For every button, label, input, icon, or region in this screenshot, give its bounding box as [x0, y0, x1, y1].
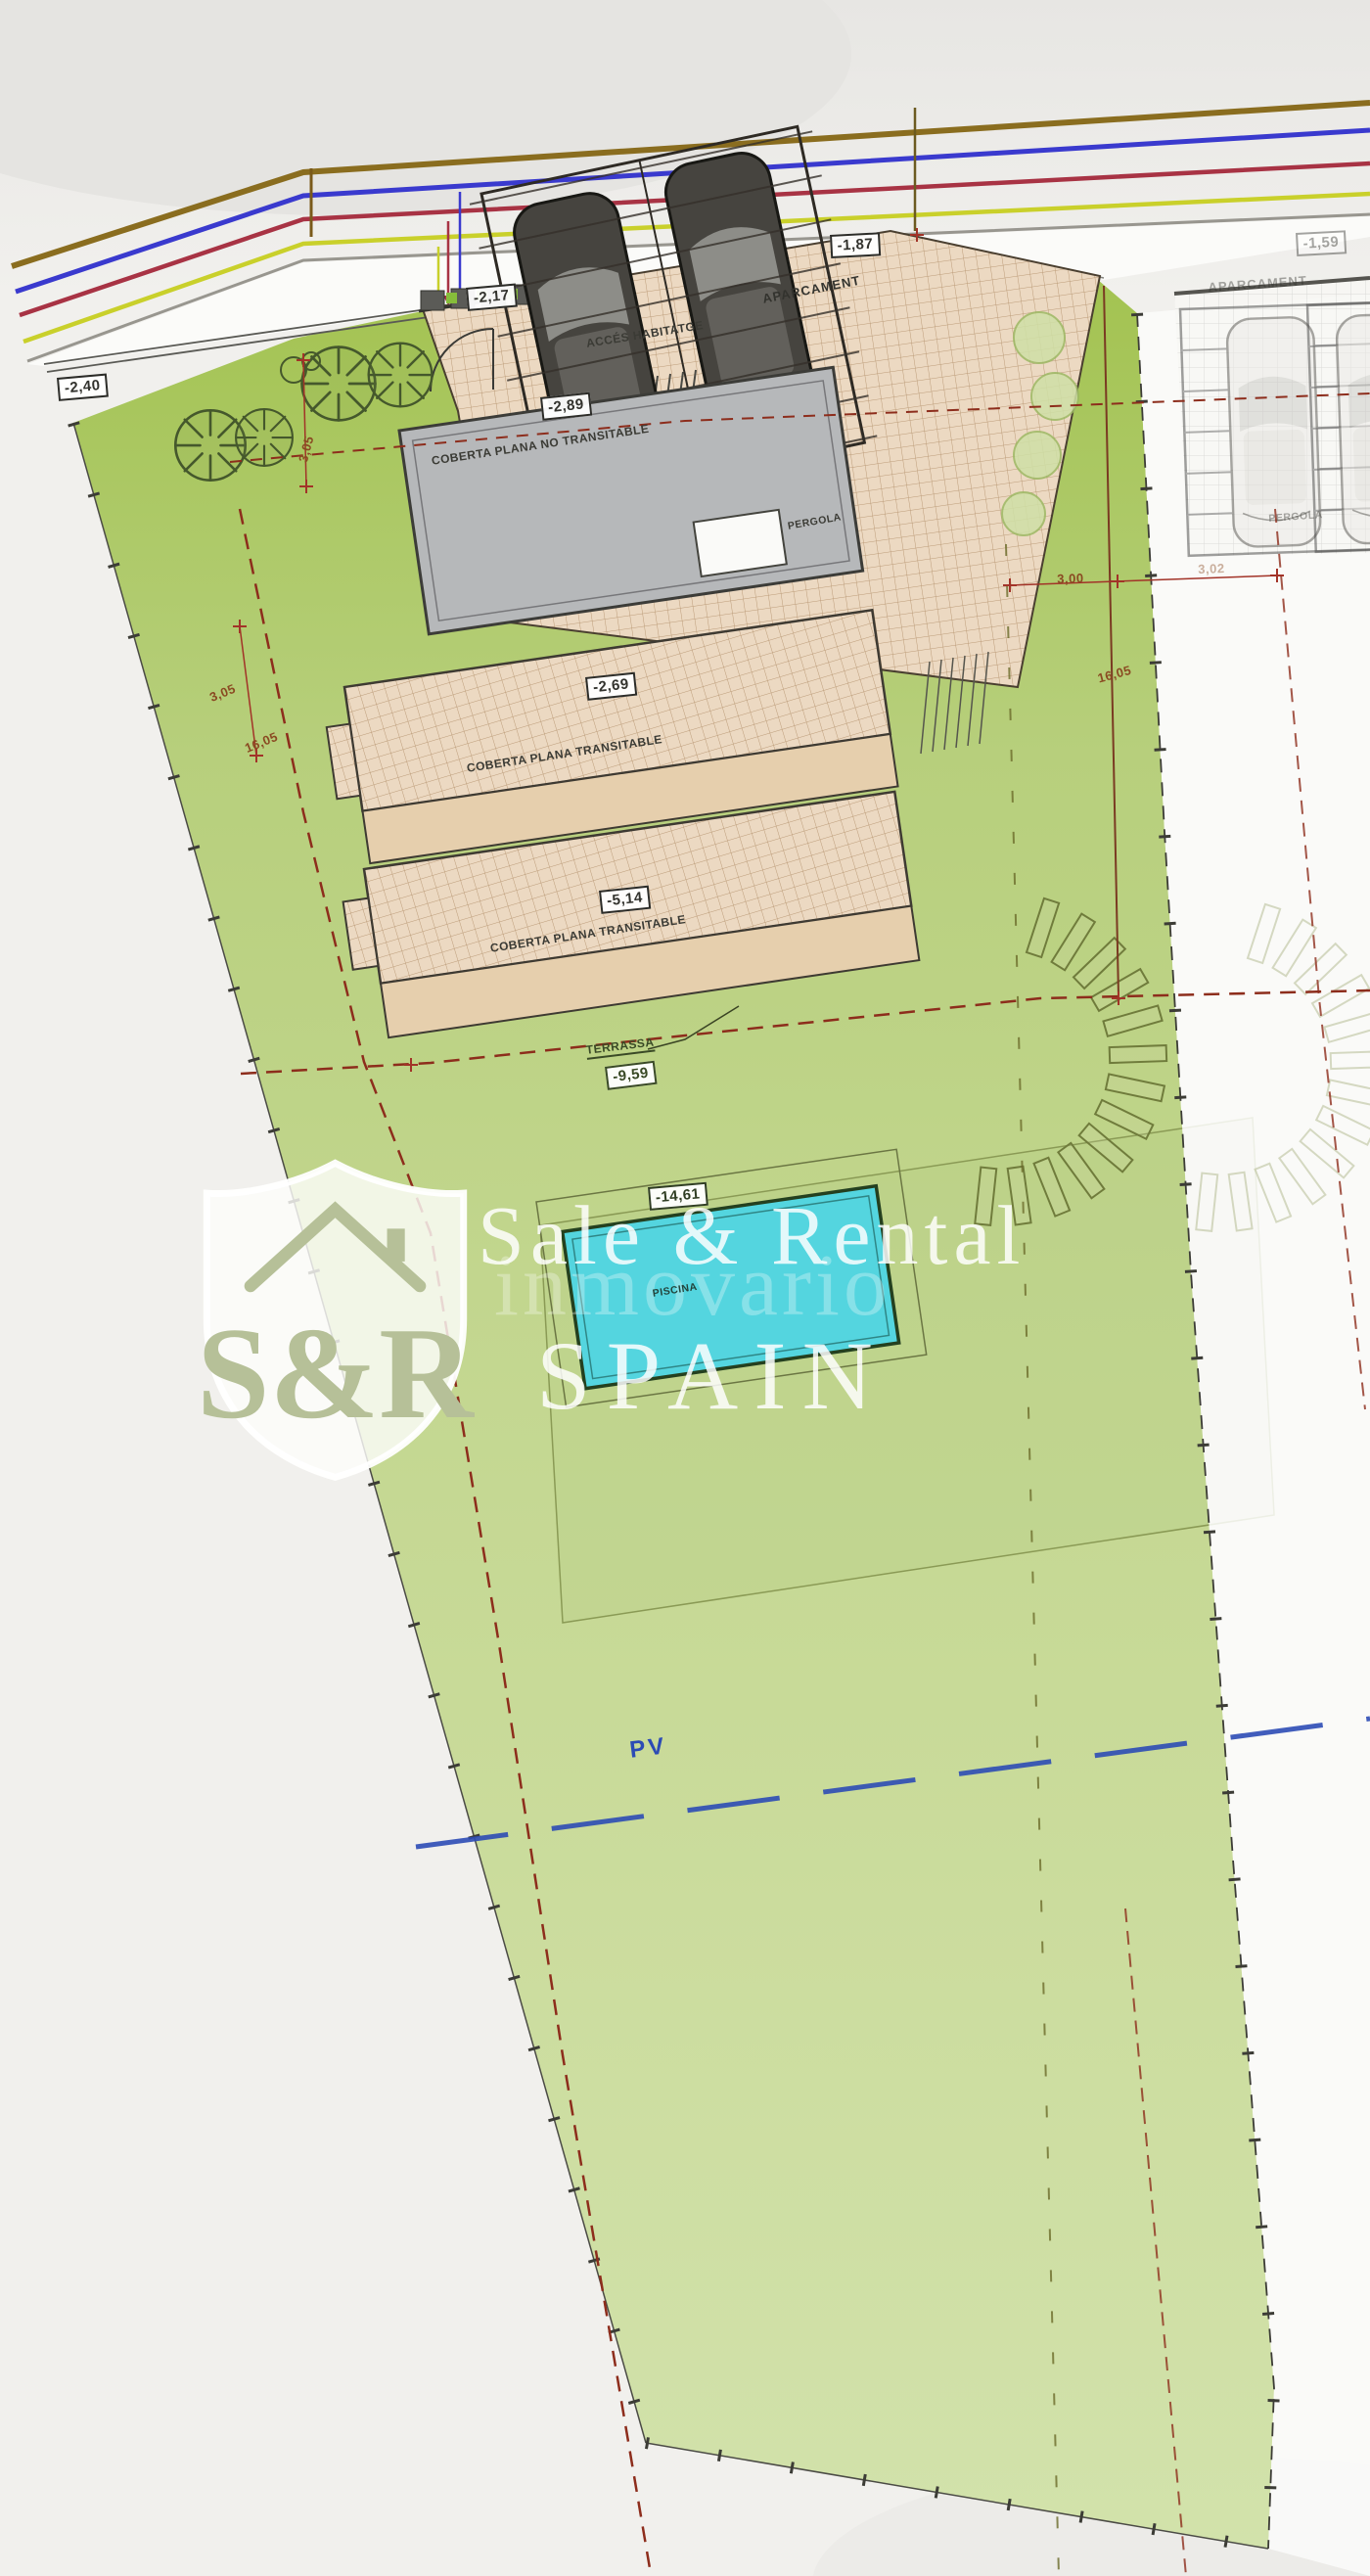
watermark-shield-icon: S&R — [196, 1155, 475, 1483]
level-label--2-40: -2,40 — [57, 374, 109, 401]
watermark-country-text: SPAIN — [536, 1319, 889, 1432]
site-plan-canvas: S&R inmovario Sale & Rental SPAIN -2,40 … — [0, 0, 1370, 2576]
level-label--1-87: -1,87 — [830, 232, 881, 258]
pv-label: PV — [628, 1732, 668, 1764]
dim-label-3-02: 3,02 — [1198, 561, 1225, 576]
level-label--2-17: -2,17 — [466, 284, 518, 311]
watermark-brand-text: Sale & Rental — [478, 1186, 1026, 1284]
dim-label-3-00: 3,00 — [1057, 571, 1084, 586]
level-label--1-59: -1,59 — [1296, 230, 1347, 256]
watermark-initials: S&R — [197, 1301, 475, 1446]
